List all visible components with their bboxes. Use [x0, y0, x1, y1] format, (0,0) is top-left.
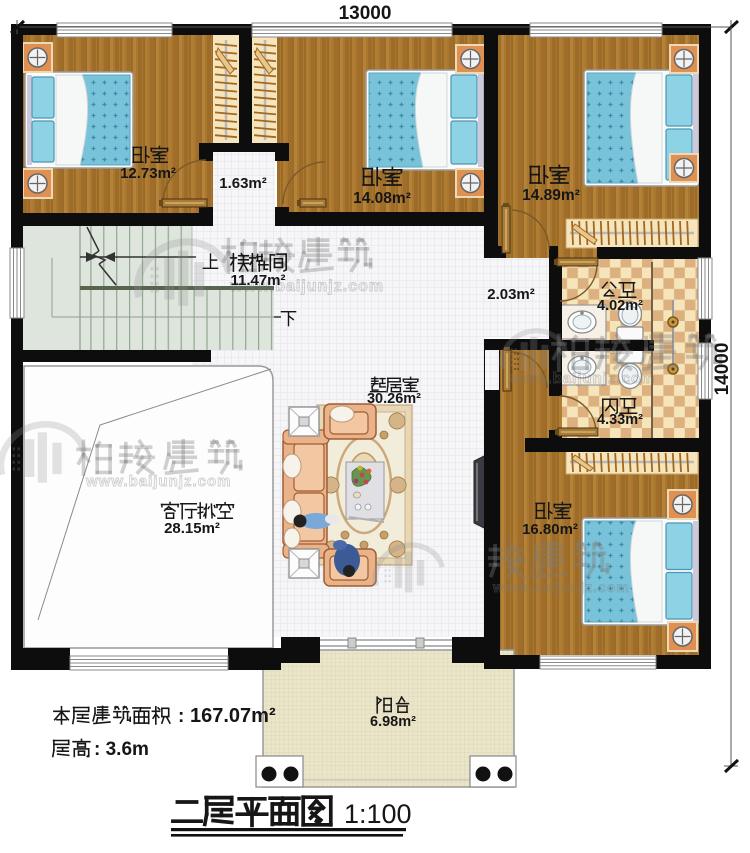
svg-text:www.baijunjz.com: www.baijunjz.com [509, 370, 655, 387]
svg-text:4.33m²: 4.33m² [597, 412, 643, 428]
svg-text:www.baijunjz.com: www.baijunjz.com [492, 579, 630, 595]
svg-text:14000: 14000 [712, 343, 733, 396]
svg-text:12.73m²: 12.73m² [120, 165, 176, 182]
svg-text:28.15m²: 28.15m² [164, 520, 220, 537]
svg-text:11.47m²: 11.47m² [230, 272, 285, 289]
svg-text:6.98m²: 6.98m² [370, 714, 416, 730]
svg-text:30.26m²: 30.26m² [367, 391, 421, 407]
svg-text:1.63m²: 1.63m² [219, 175, 267, 192]
svg-text:2.03m²: 2.03m² [487, 286, 535, 303]
svg-text:14.08m²: 14.08m² [353, 190, 411, 207]
svg-text:: 3.6m: : 3.6m [94, 739, 149, 760]
svg-text:4.02m²: 4.02m² [597, 298, 643, 314]
svg-text:14.89m²: 14.89m² [522, 187, 580, 204]
svg-text:www.baijunjz.com: www.baijunjz.com [85, 473, 231, 490]
svg-text:16.80m²: 16.80m² [522, 521, 578, 538]
svg-text:167.07m²: 167.07m² [190, 705, 276, 727]
svg-text::: : [178, 706, 184, 727]
svg-text:1:100: 1:100 [344, 799, 412, 829]
svg-text:13000: 13000 [339, 3, 392, 24]
